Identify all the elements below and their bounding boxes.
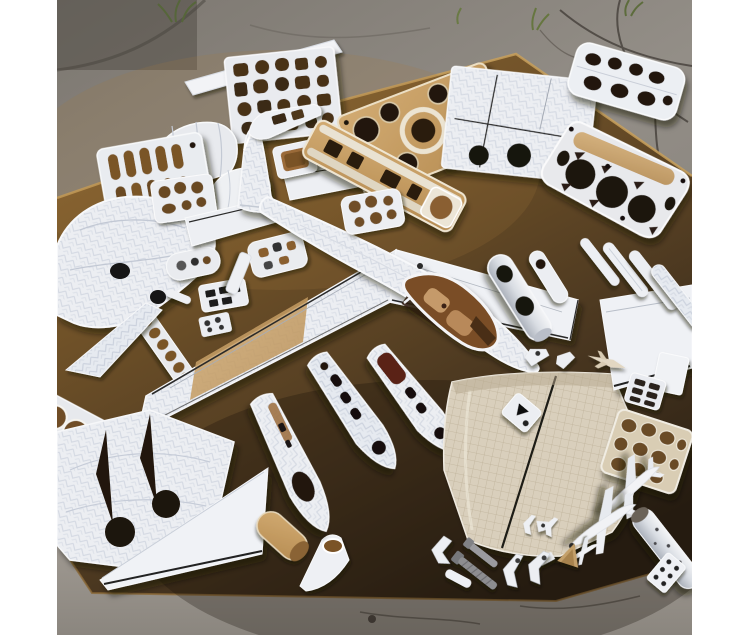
photo-frame: [0, 0, 749, 635]
knolling-airplane-photo: [0, 0, 749, 635]
